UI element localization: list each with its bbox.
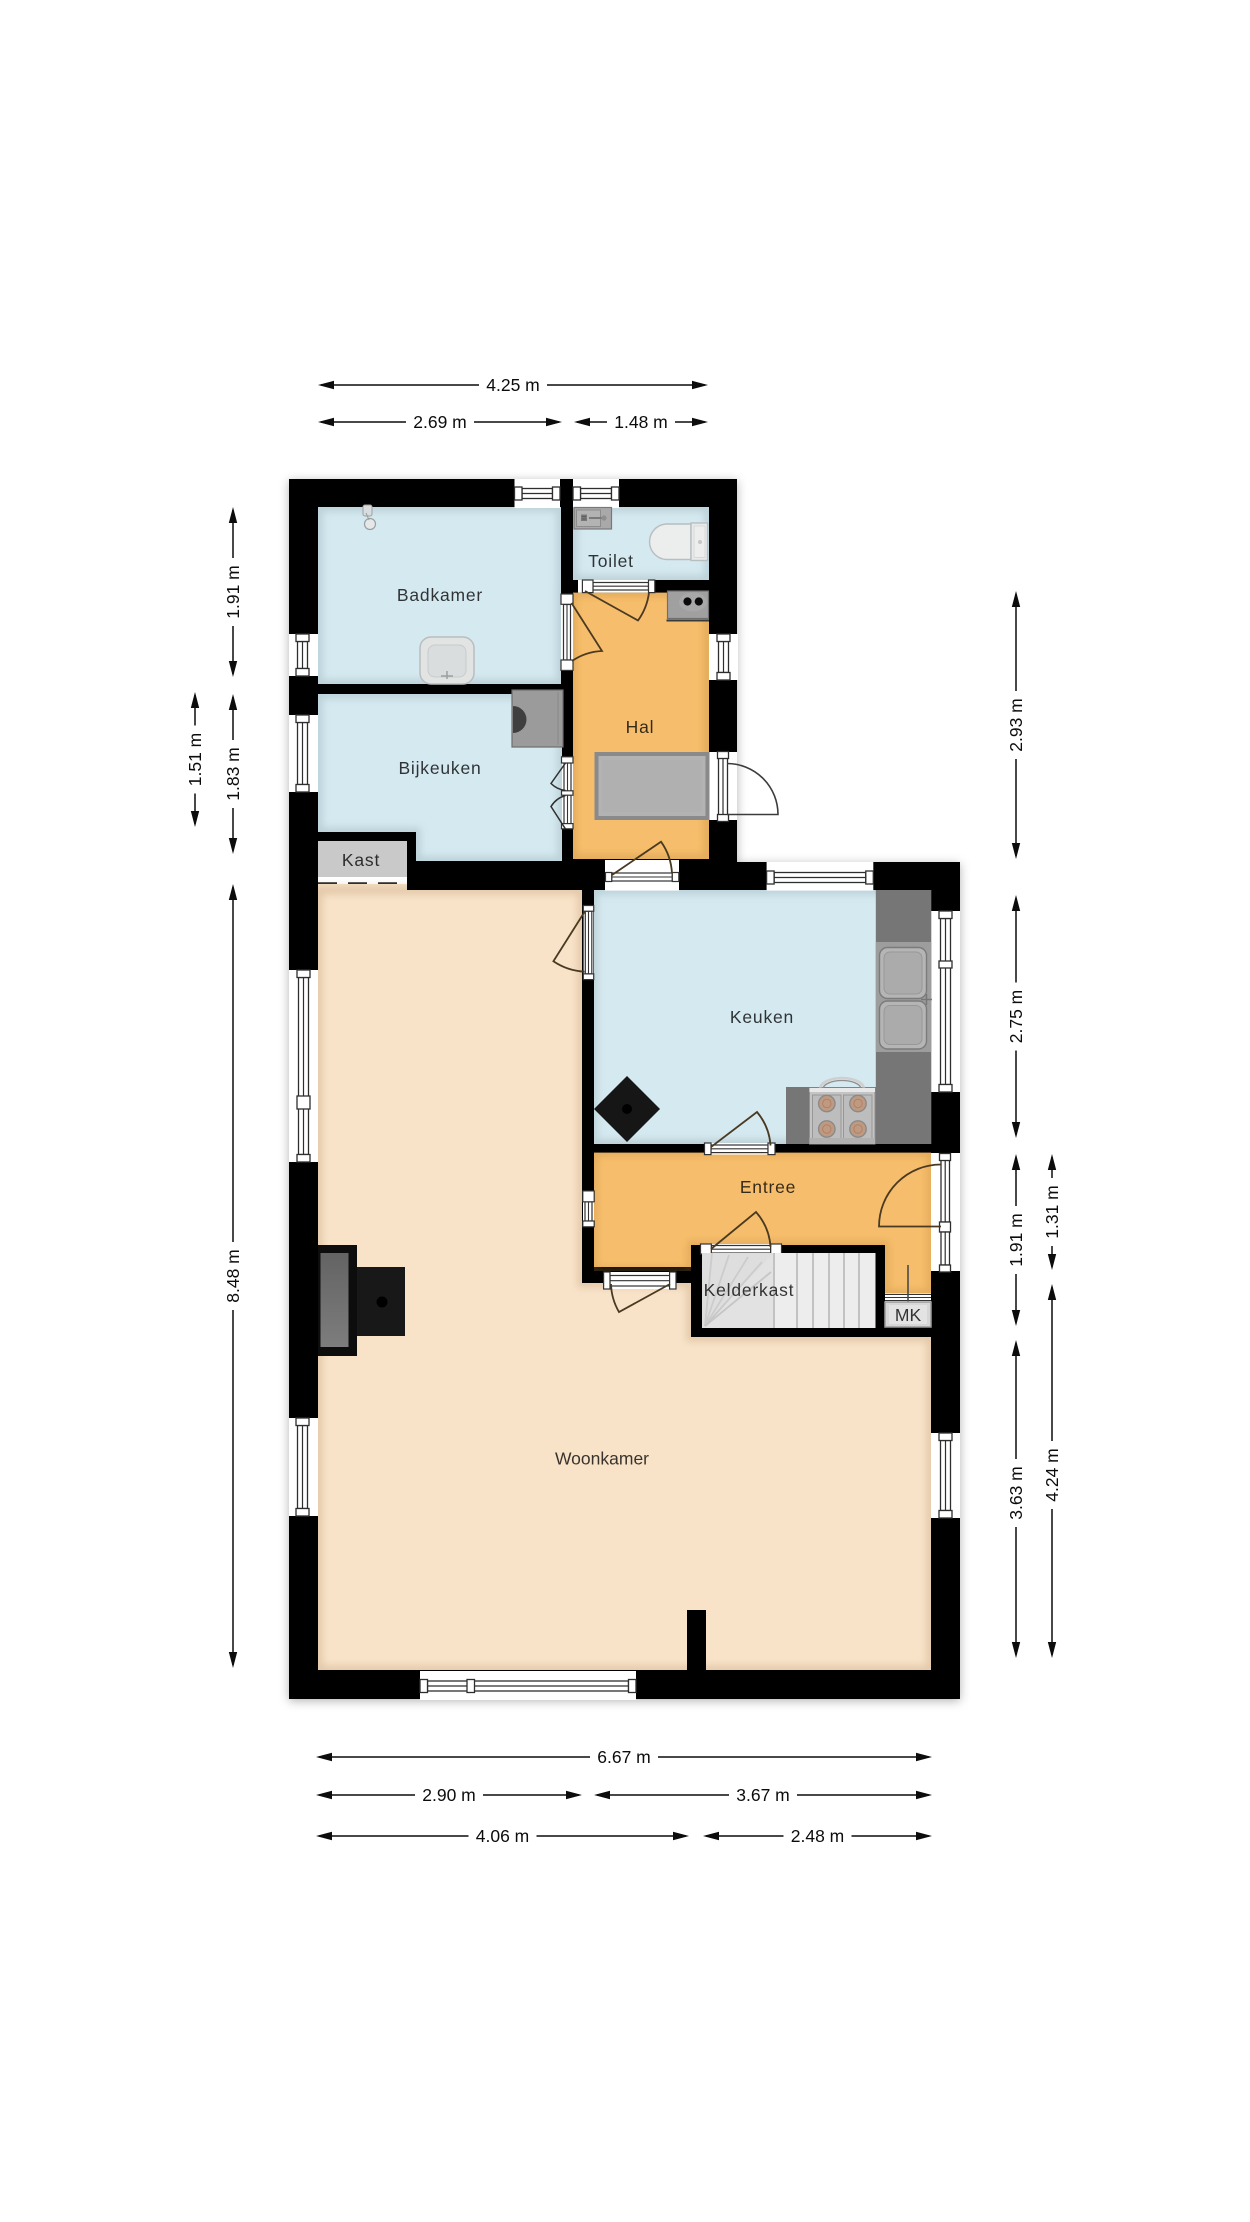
svg-text:Badkamer: Badkamer (397, 585, 483, 605)
svg-text:1.91 m: 1.91 m (223, 565, 243, 619)
svg-text:1.48 m: 1.48 m (614, 412, 668, 432)
svg-text:2.69 m: 2.69 m (413, 412, 467, 432)
svg-text:Kelderkast: Kelderkast (704, 1280, 795, 1300)
svg-text:Keuken: Keuken (730, 1007, 794, 1027)
svg-text:6.67 m: 6.67 m (597, 1747, 651, 1767)
svg-text:1.31 m: 1.31 m (1042, 1185, 1062, 1239)
svg-text:Kast: Kast (342, 850, 380, 870)
svg-text:2.48 m: 2.48 m (791, 1826, 845, 1846)
svg-text:MK: MK (895, 1305, 922, 1325)
svg-text:3.63 m: 3.63 m (1006, 1466, 1026, 1520)
svg-text:Entree: Entree (740, 1177, 796, 1197)
svg-text:Toilet: Toilet (588, 551, 634, 571)
svg-text:Woonkamer: Woonkamer (555, 1449, 649, 1469)
svg-text:2.90 m: 2.90 m (422, 1785, 476, 1805)
svg-text:1.91 m: 1.91 m (1006, 1213, 1026, 1267)
svg-text:2.93 m: 2.93 m (1006, 698, 1026, 752)
svg-text:1.83 m: 1.83 m (223, 747, 243, 801)
svg-text:4.24 m: 4.24 m (1042, 1448, 1062, 1502)
svg-text:Hal: Hal (626, 717, 655, 737)
svg-text:4.06 m: 4.06 m (476, 1826, 530, 1846)
svg-text:2.75 m: 2.75 m (1006, 990, 1026, 1044)
svg-text:3.67 m: 3.67 m (736, 1785, 790, 1805)
svg-text:4.25 m: 4.25 m (486, 375, 540, 395)
svg-text:Bijkeuken: Bijkeuken (398, 758, 481, 778)
svg-text:1.51 m: 1.51 m (185, 733, 205, 787)
svg-text:8.48 m: 8.48 m (223, 1249, 243, 1303)
